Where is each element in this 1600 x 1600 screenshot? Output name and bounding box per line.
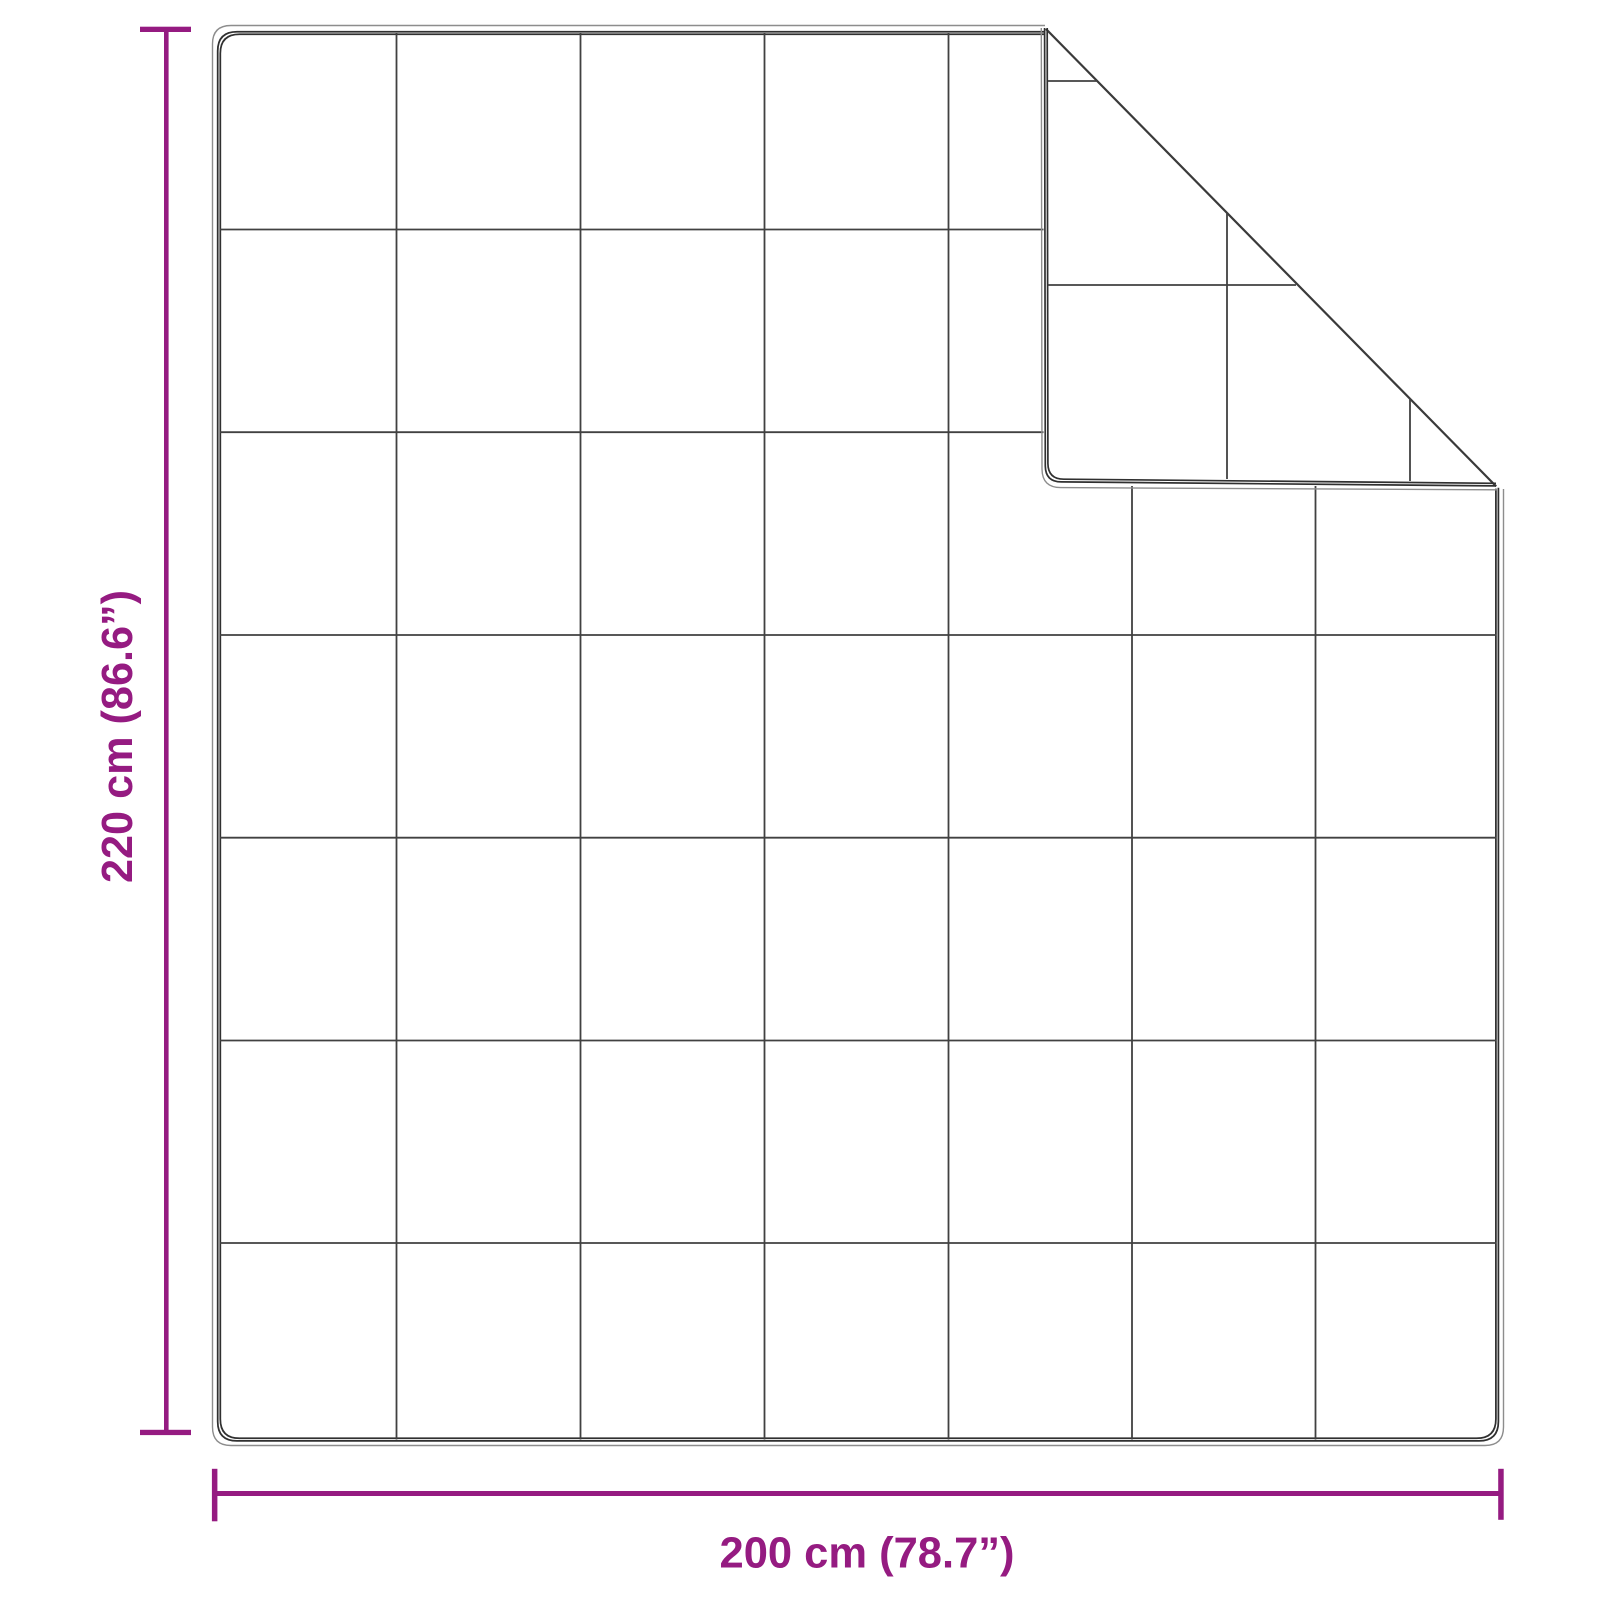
- svg-text:200 cm (78.7”): 200 cm (78.7”): [720, 1530, 1015, 1578]
- svg-text:220 cm (86.6”): 220 cm (86.6”): [94, 590, 142, 883]
